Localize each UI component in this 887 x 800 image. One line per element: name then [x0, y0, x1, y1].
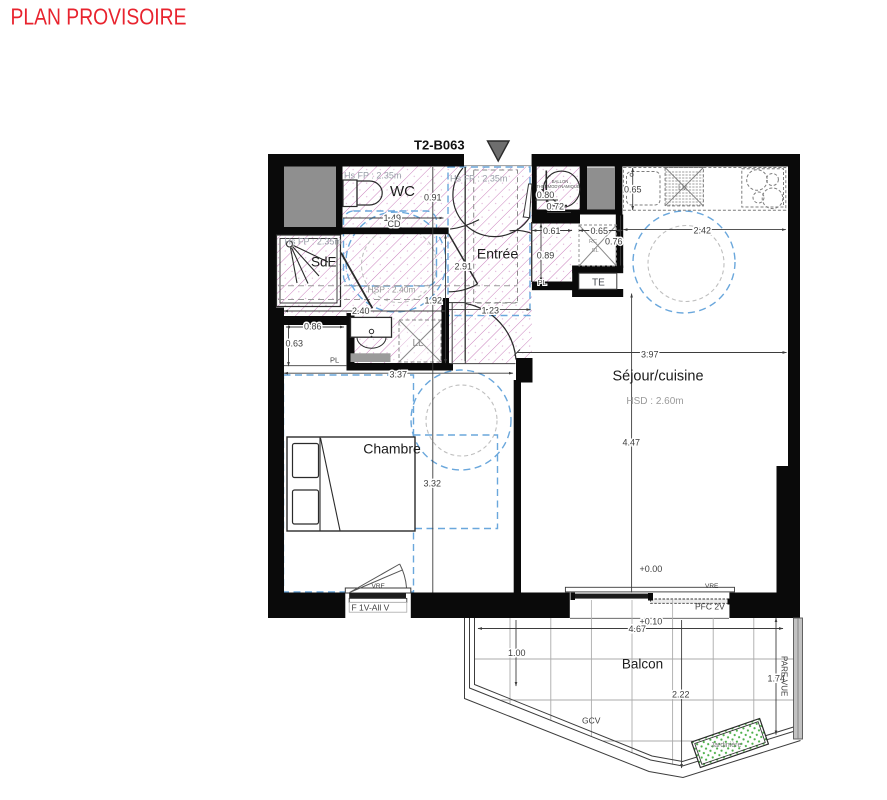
svg-text:0.89: 0.89 — [537, 251, 555, 261]
svg-text:Hs FP : 2.35m: Hs FP : 2.35m — [450, 174, 507, 184]
svg-text:2.42: 2.42 — [694, 226, 712, 236]
svg-text:Hs FP : 2.35m: Hs FP : 2.35m — [344, 171, 401, 181]
svg-text:HSD : 2.60m: HSD : 2.60m — [626, 396, 683, 407]
svg-text:0.72: 0.72 — [547, 202, 565, 212]
svg-text:EL: EL — [592, 248, 599, 254]
svg-text:3.32: 3.32 — [424, 479, 442, 489]
svg-text:LV: LV — [678, 183, 688, 192]
svg-text:GCV: GCV — [582, 716, 601, 726]
svg-text:LL: LL — [413, 338, 425, 349]
svg-text:PL: PL — [330, 356, 339, 365]
svg-text:VRE: VRE — [705, 583, 719, 590]
svg-text:TE: TE — [592, 278, 605, 289]
svg-text:1.23: 1.23 — [482, 306, 500, 316]
svg-text:RC: RC — [589, 239, 597, 245]
svg-text:0.91: 0.91 — [424, 193, 442, 203]
svg-text:PL: PL — [538, 278, 547, 287]
svg-text:Jardinière: Jardinière — [711, 742, 742, 749]
svg-text:4.47: 4.47 — [623, 438, 641, 448]
svg-text:T2-B063: T2-B063 — [414, 138, 465, 153]
svg-text:1.92: 1.92 — [425, 296, 443, 306]
svg-text:Hs FP : 2.35m: Hs FP : 2.35m — [285, 237, 342, 247]
svg-text:Entrée: Entrée — [477, 246, 518, 262]
svg-text:2.40: 2.40 — [352, 306, 370, 316]
svg-text:0.61: 0.61 — [543, 226, 561, 236]
svg-text:3.37: 3.37 — [390, 370, 408, 380]
svg-text:2.22: 2.22 — [672, 690, 690, 700]
svg-text:0.63: 0.63 — [286, 339, 304, 349]
svg-text:2.91: 2.91 — [455, 262, 473, 272]
svg-text:4.67: 4.67 — [629, 624, 647, 634]
svg-text:CD: CD — [388, 219, 401, 229]
svg-text:F 1V-All V: F 1V-All V — [352, 603, 390, 613]
svg-text:THERMODYNAMIQUE: THERMODYNAMIQUE — [536, 184, 580, 189]
svg-text:PFC 2V: PFC 2V — [695, 602, 725, 612]
svg-text:SdE: SdE — [311, 255, 337, 270]
svg-text:1.00: 1.00 — [508, 648, 526, 658]
svg-text:WC: WC — [390, 183, 415, 200]
svg-text:3.97: 3.97 — [641, 350, 659, 360]
svg-text:0.65: 0.65 — [591, 226, 609, 236]
svg-text:0.76: 0.76 — [605, 237, 623, 247]
svg-text:0.86: 0.86 — [304, 322, 322, 332]
svg-text:VRE: VRE — [372, 583, 386, 590]
svg-text:PLAN PROVISOIRE: PLAN PROVISOIRE — [11, 4, 187, 30]
svg-text:HSP : 2.40m: HSP : 2.40m — [368, 285, 416, 295]
svg-text:PARE-VUE: PARE-VUE — [780, 656, 789, 696]
svg-text:Séjour/cuisine: Séjour/cuisine — [612, 369, 703, 385]
svg-text:Chambre: Chambre — [363, 441, 421, 457]
svg-text:Balcon: Balcon — [622, 657, 663, 672]
svg-text:0.65: 0.65 — [624, 185, 642, 195]
svg-text:0.80: 0.80 — [537, 190, 555, 200]
svg-text:+0.00: +0.00 — [640, 564, 663, 574]
